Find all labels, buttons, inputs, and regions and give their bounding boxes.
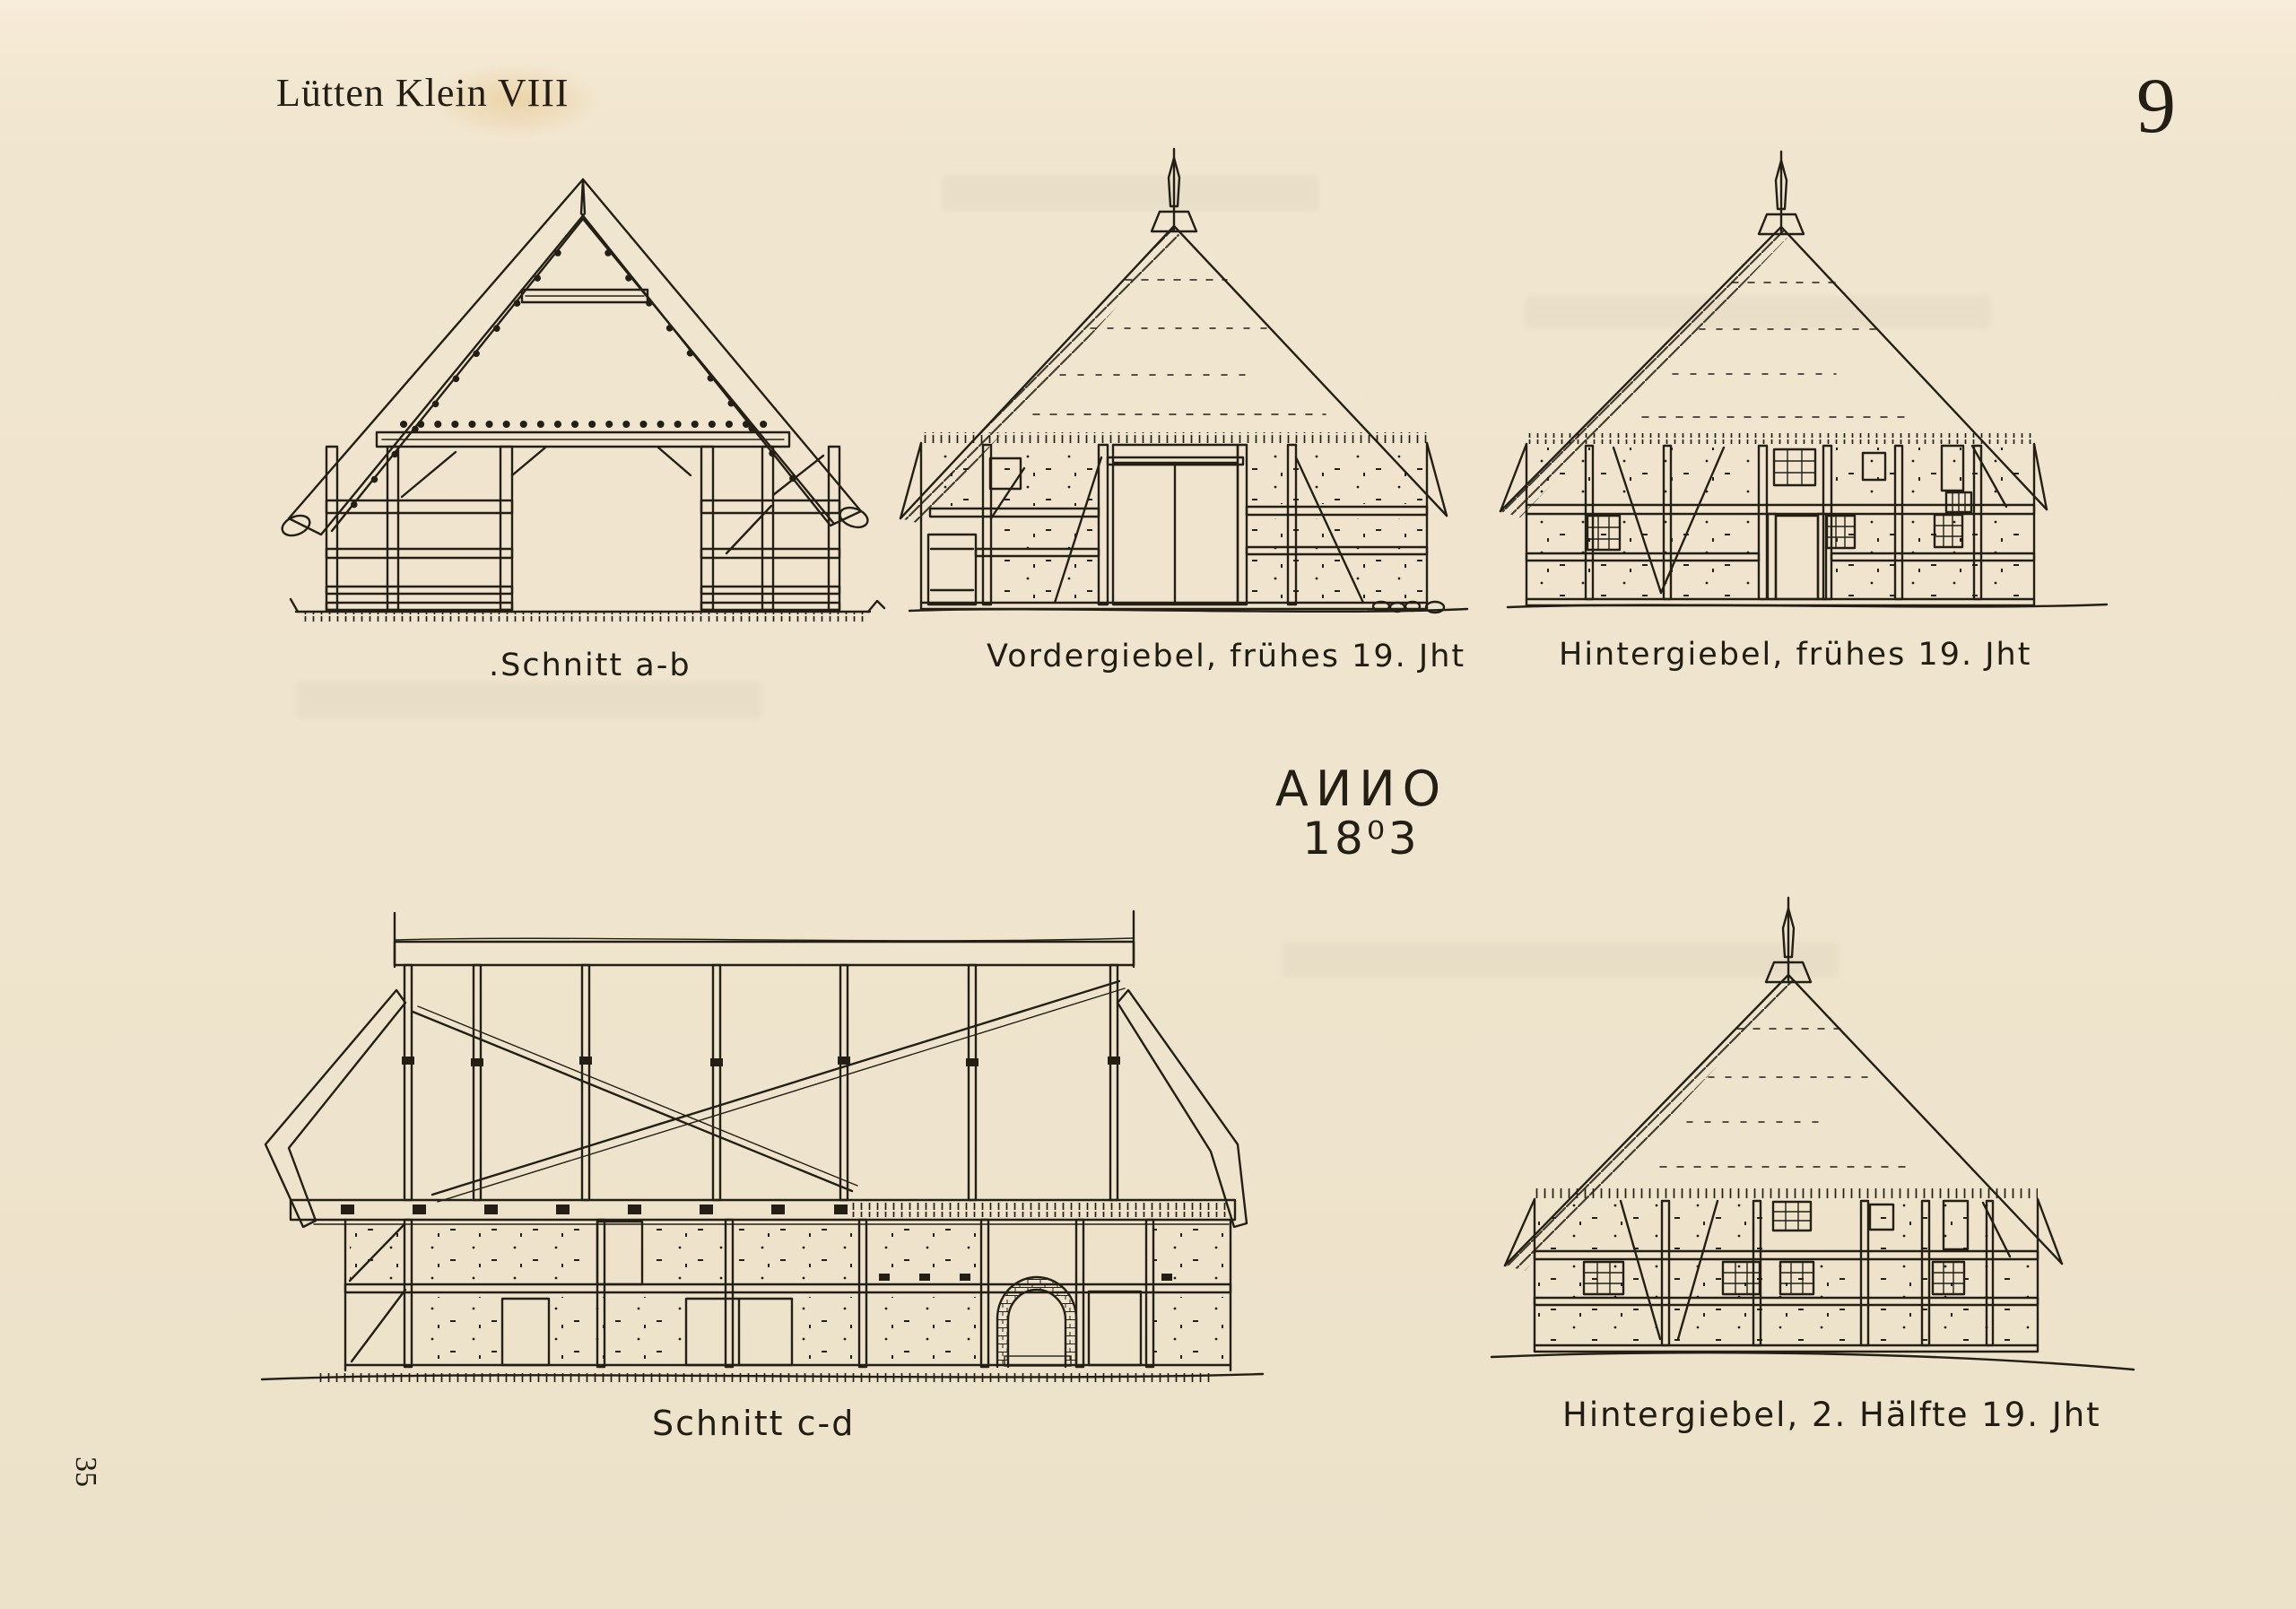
caption-hintergiebel-early: Hintergiebel, frühes 19. Jht <box>1559 637 2031 673</box>
margin-page-number: 35 <box>68 1457 102 1487</box>
stall-door <box>1089 1292 1141 1365</box>
lower-wall <box>345 1220 1231 1370</box>
tie-beam <box>377 424 789 447</box>
page-title: Lütten Klein VIII <box>276 70 570 116</box>
ground-line <box>262 1372 1263 1382</box>
posts <box>402 965 1120 1200</box>
schnitt-a-b-drawing <box>269 163 897 639</box>
ridge-plate <box>395 911 1134 967</box>
vordergiebel-drawing <box>897 144 1480 619</box>
attic-window <box>1774 449 1815 485</box>
wall-frame <box>326 447 839 610</box>
caption-hintergiebel-late: Hintergiebel, 2. Hälfte 19. Jht <box>1562 1396 2101 1434</box>
figure-vordergiebel <box>897 144 1480 619</box>
stall-door <box>502 1299 549 1365</box>
roof-finial <box>1152 149 1196 231</box>
side-door <box>928 535 976 604</box>
attic-window <box>1773 1202 1811 1231</box>
anno-inscription: AИИO 18⁰3 <box>1263 764 1460 862</box>
figure-hintergiebel-early <box>1493 148 2121 623</box>
anno-word: AИИO <box>1263 764 1460 815</box>
figure-schnitt-c-d <box>260 904 1265 1406</box>
ground-line <box>1492 1352 2134 1370</box>
roof-finial <box>1759 152 1804 234</box>
back-door <box>1768 514 1826 599</box>
caption-schnitt-a-b: .Schnitt a-b <box>489 648 691 683</box>
cross-braces <box>413 981 1125 1202</box>
hintergiebel-late-drawing <box>1484 892 2139 1381</box>
caption-vordergiebel: Vordergiebel, frühes 19. Jht <box>987 639 1465 674</box>
double-door <box>686 1299 792 1365</box>
eave-beam <box>291 1200 1235 1224</box>
hintergiebel-early-drawing <box>1493 148 2121 623</box>
scanned-book-page: Lütten Klein VIII 9 35 <box>0 0 2296 1609</box>
figure-schnitt-a-b <box>269 163 897 639</box>
page-number: 9 <box>2136 61 2176 152</box>
caption-schnitt-c-d: Schnitt c-d <box>652 1404 855 1443</box>
arched-doorway <box>997 1277 1076 1367</box>
barn-door <box>1108 457 1243 604</box>
wall-frame <box>1526 444 2034 605</box>
lattice-band <box>1113 445 1238 463</box>
schnitt-c-d-drawing <box>260 904 1265 1406</box>
figure-hintergiebel-late <box>1484 892 2139 1381</box>
roof <box>279 179 870 539</box>
show-through-mark <box>296 682 762 719</box>
roof-finial <box>1766 898 1811 982</box>
anno-year: 18⁰3 <box>1263 815 1460 863</box>
